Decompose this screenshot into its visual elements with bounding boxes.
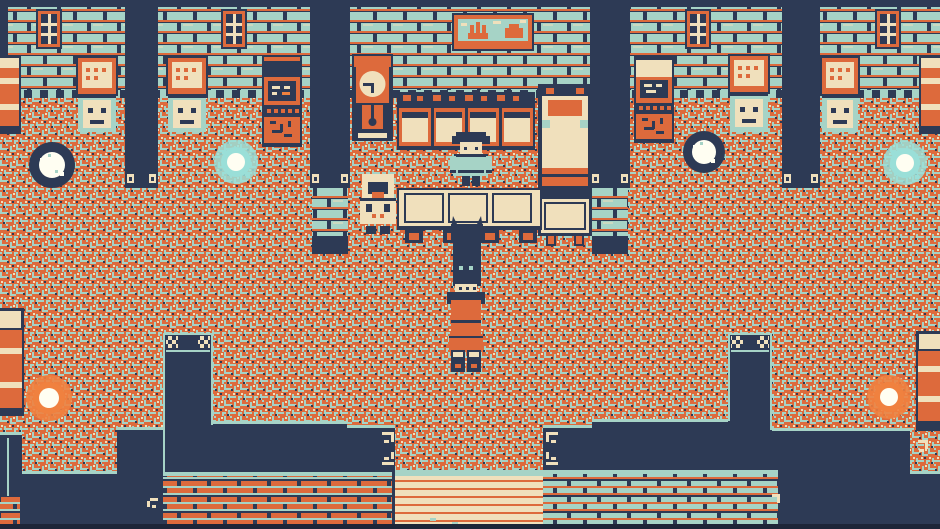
pillar-2 [310, 0, 350, 254]
orb-orange-left[interactable] [26, 375, 72, 421]
jukebox-machine-right[interactable] [634, 55, 674, 143]
orb-teal-left[interactable] [214, 140, 258, 184]
pillar-3 [590, 0, 630, 254]
game-viewport[interactable]: Pixel-art tavern interior — retro 4-colo… [0, 0, 940, 529]
bed-pillow [548, 100, 582, 116]
window-left [36, 9, 62, 49]
player-eye-right [469, 266, 473, 270]
barrel-floor-left[interactable] [0, 308, 24, 416]
stairs-down[interactable] [395, 470, 543, 529]
window-right [875, 9, 901, 49]
orb-teal-right[interactable] [883, 141, 927, 185]
machine-screen [268, 81, 296, 101]
clock-hand-hour [363, 83, 373, 86]
player-eye-left [459, 266, 463, 270]
pillar-4 [782, 0, 820, 188]
dresser-midright[interactable] [728, 54, 770, 132]
barrel-wall-right[interactable] [919, 56, 940, 134]
pillar-1 [125, 0, 158, 188]
wall-painting[interactable] [452, 13, 534, 51]
dresser-right[interactable] [820, 56, 860, 132]
bar-half-wall-left [312, 188, 348, 236]
machine-screen [640, 80, 668, 98]
barrel-floor-right[interactable] [916, 331, 940, 431]
bar-counter[interactable] [397, 188, 542, 230]
orb-white-right[interactable] [683, 131, 725, 173]
bar-half-wall-right [592, 188, 628, 236]
lower-brick-wall-right [541, 470, 778, 524]
dresser-left[interactable] [76, 56, 118, 132]
lower-brick-wall-left [163, 472, 392, 524]
window-midleft [221, 9, 247, 49]
newel-post-right [728, 333, 772, 479]
orb-orange-right[interactable] [867, 375, 911, 419]
window-midright [685, 9, 711, 49]
barrel-wall-left[interactable] [0, 56, 21, 134]
jukebox-machine-left[interactable] [262, 55, 302, 147]
dresser-midleft[interactable] [166, 56, 208, 132]
newel-post-left [163, 333, 213, 479]
bed[interactable] [538, 84, 592, 196]
grandfather-clock[interactable] [352, 54, 393, 141]
bottom-letterbox [0, 524, 940, 529]
orb-white-left[interactable] [29, 142, 75, 188]
lower-brick-corner-left [0, 496, 20, 524]
player-character[interactable] [447, 216, 485, 372]
